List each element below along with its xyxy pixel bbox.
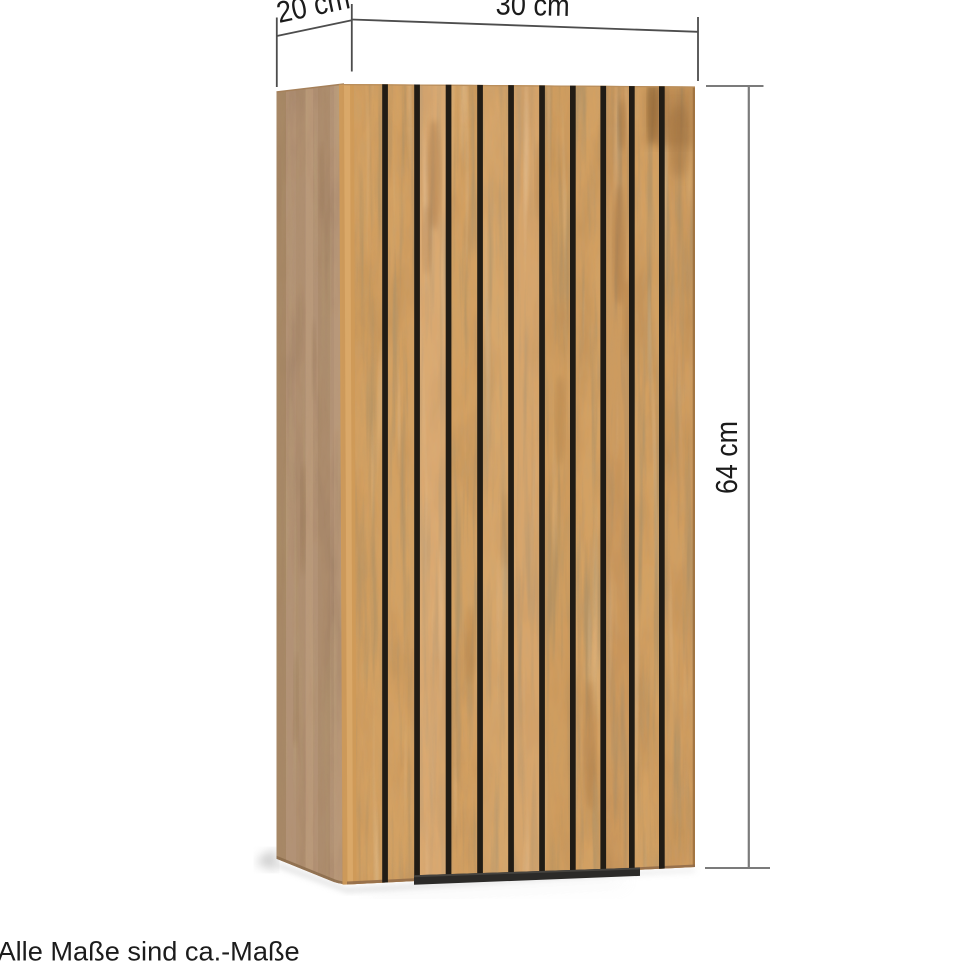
svg-text:30 cm: 30 cm <box>495 0 570 23</box>
svg-text:64 cm: 64 cm <box>711 421 744 494</box>
svg-text:Alle Maße sind ca.-Maße: Alle Maße sind ca.-Maße <box>0 936 300 967</box>
